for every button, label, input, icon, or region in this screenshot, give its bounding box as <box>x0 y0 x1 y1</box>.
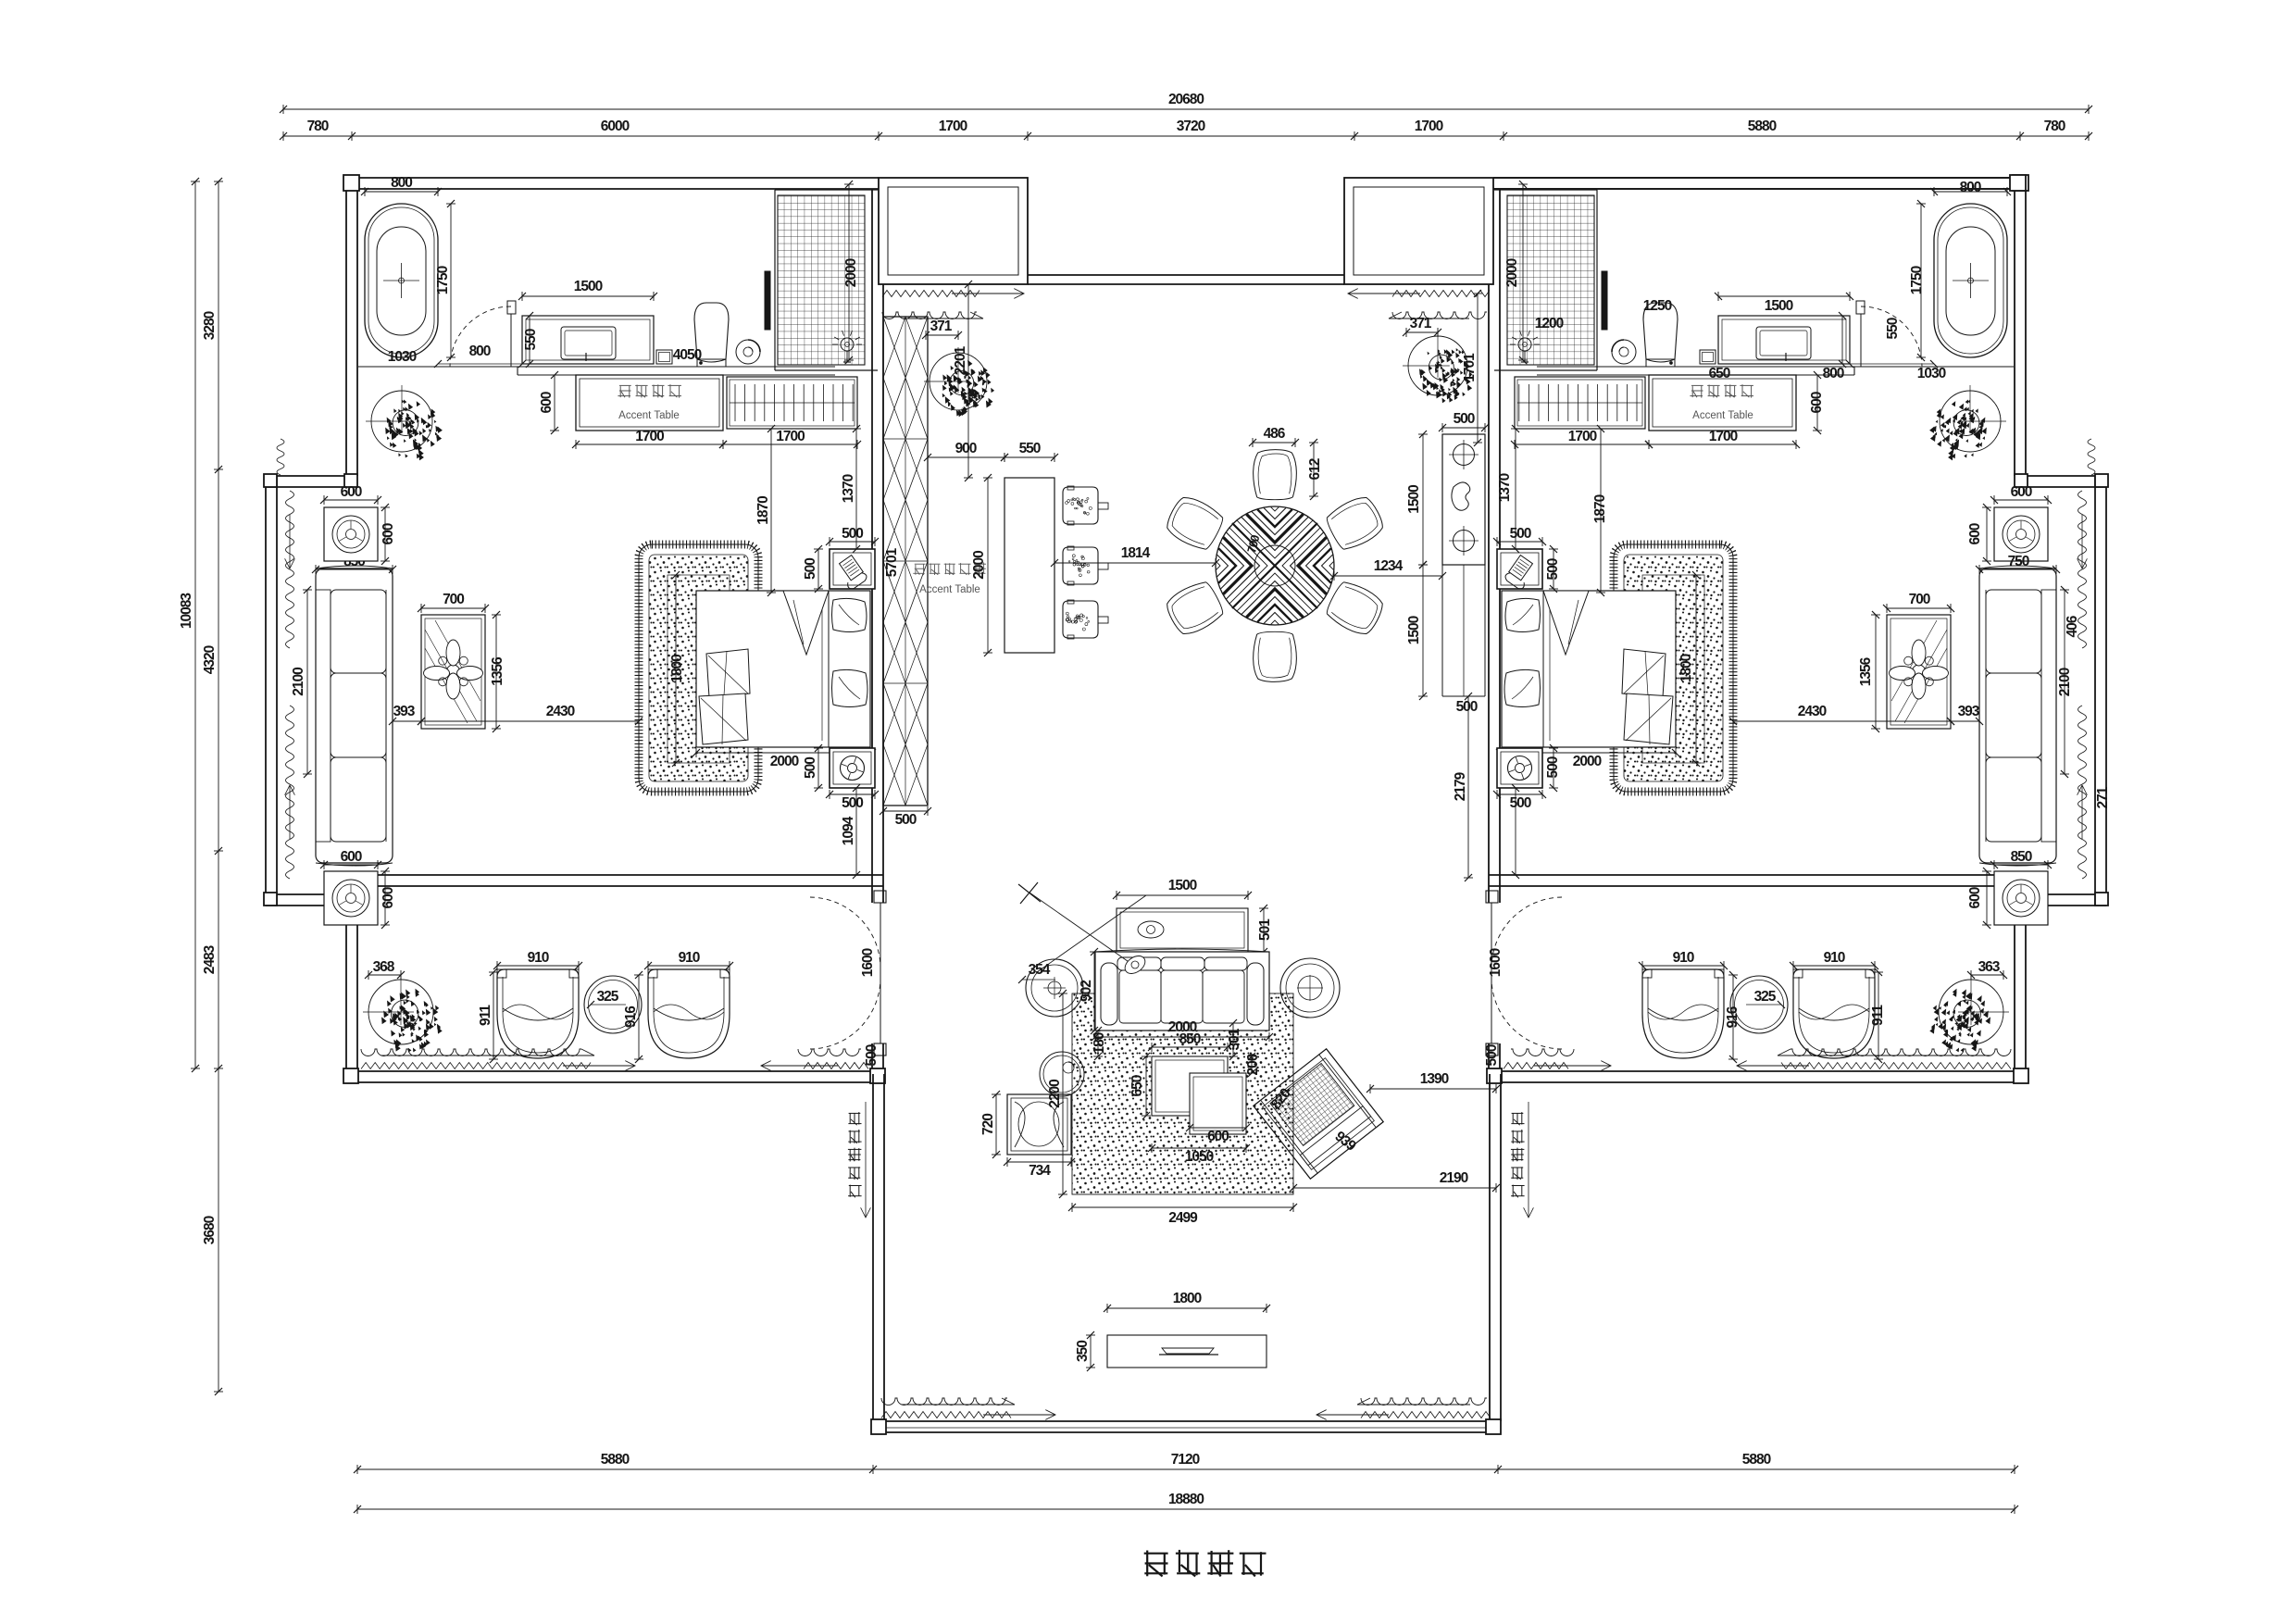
svg-text:368: 368 <box>373 959 395 975</box>
svg-text:600: 600 <box>1207 1129 1229 1144</box>
svg-text:1094: 1094 <box>841 816 856 845</box>
svg-text:7120: 7120 <box>1171 1452 1200 1468</box>
svg-text:600: 600 <box>341 484 362 500</box>
svg-text:5880: 5880 <box>601 1452 630 1468</box>
svg-text:1050: 1050 <box>1185 1149 1214 1165</box>
svg-text:800: 800 <box>1823 366 1844 381</box>
svg-text:2000: 2000 <box>1504 258 1520 287</box>
svg-text:350: 350 <box>1075 1341 1091 1362</box>
svg-text:1370: 1370 <box>1497 473 1513 502</box>
svg-text:1700: 1700 <box>1568 429 1597 444</box>
svg-text:2483: 2483 <box>202 944 218 974</box>
svg-text:1390: 1390 <box>1420 1071 1449 1087</box>
svg-text:1500: 1500 <box>1765 298 1793 314</box>
svg-text:4050: 4050 <box>673 347 702 363</box>
svg-text:10083: 10083 <box>179 593 194 629</box>
svg-text:550: 550 <box>523 329 539 350</box>
svg-text:1356: 1356 <box>490 656 505 686</box>
svg-text:500: 500 <box>1510 526 1531 542</box>
svg-text:486: 486 <box>1264 426 1286 442</box>
svg-text:700: 700 <box>443 592 464 607</box>
svg-text:910: 910 <box>679 950 700 966</box>
svg-text:700: 700 <box>1909 592 1930 607</box>
svg-text:500: 500 <box>864 1044 880 1066</box>
svg-text:500: 500 <box>1456 699 1478 715</box>
svg-text:6000: 6000 <box>601 119 630 134</box>
svg-text:600: 600 <box>1809 392 1825 413</box>
svg-text:720: 720 <box>980 1114 996 1135</box>
svg-text:612: 612 <box>1307 458 1323 480</box>
svg-text:600: 600 <box>381 523 396 544</box>
svg-text:1600: 1600 <box>1488 948 1504 977</box>
svg-text:550: 550 <box>1019 441 1041 456</box>
svg-text:780: 780 <box>2044 119 2065 134</box>
svg-text:Accent Table: Accent Table <box>919 584 980 595</box>
svg-text:1700: 1700 <box>776 429 805 444</box>
svg-text:910: 910 <box>1673 950 1694 966</box>
svg-text:325: 325 <box>1754 989 1777 1005</box>
svg-text:501: 501 <box>1257 918 1273 941</box>
svg-text:354: 354 <box>1029 962 1051 978</box>
svg-text:325: 325 <box>597 989 619 1005</box>
svg-text:910: 910 <box>1824 950 1845 966</box>
svg-text:2201: 2201 <box>953 345 968 375</box>
svg-text:1500: 1500 <box>1168 878 1197 893</box>
svg-text:301: 301 <box>1227 1028 1242 1050</box>
svg-text:5880: 5880 <box>1748 119 1777 134</box>
svg-text:Accent Table: Accent Table <box>618 410 680 421</box>
svg-text:371: 371 <box>1410 316 1432 331</box>
svg-text:850: 850 <box>2011 849 2032 865</box>
svg-text:600: 600 <box>341 849 362 865</box>
svg-text:180: 180 <box>1092 1032 1107 1054</box>
svg-text:902: 902 <box>1079 981 1094 1002</box>
svg-text:1701: 1701 <box>1462 353 1478 382</box>
svg-text:1356: 1356 <box>1858 656 1874 686</box>
svg-text:911: 911 <box>1870 1005 1886 1026</box>
svg-text:600: 600 <box>1967 523 1983 544</box>
svg-text:650: 650 <box>1129 1075 1145 1096</box>
svg-text:2430: 2430 <box>546 704 575 719</box>
svg-text:500: 500 <box>842 526 863 542</box>
svg-text:600: 600 <box>539 392 555 413</box>
svg-text:1030: 1030 <box>1917 366 1946 381</box>
svg-text:800: 800 <box>469 344 491 359</box>
svg-text:600: 600 <box>381 887 396 908</box>
svg-text:3720: 3720 <box>1177 119 1205 134</box>
svg-text:500: 500 <box>895 812 917 828</box>
svg-text:600: 600 <box>1967 887 1983 908</box>
svg-text:1750: 1750 <box>1909 266 1925 294</box>
svg-text:2000: 2000 <box>971 551 987 580</box>
svg-text:2430: 2430 <box>1798 704 1827 719</box>
svg-text:750: 750 <box>2008 554 2029 569</box>
svg-text:393: 393 <box>1958 704 1980 719</box>
svg-text:2100: 2100 <box>291 668 306 696</box>
svg-text:2000: 2000 <box>843 258 859 287</box>
svg-text:1870: 1870 <box>1592 494 1608 523</box>
svg-text:1234: 1234 <box>1374 558 1404 574</box>
svg-text:1030: 1030 <box>388 349 417 365</box>
svg-text:3280: 3280 <box>202 311 218 340</box>
svg-text:3680: 3680 <box>202 1216 218 1244</box>
svg-text:850: 850 <box>1179 1031 1201 1047</box>
svg-text:800: 800 <box>1960 180 1981 195</box>
svg-text:1600: 1600 <box>860 948 876 977</box>
svg-text:500: 500 <box>803 558 818 580</box>
svg-text:900: 900 <box>955 441 977 456</box>
svg-text:500: 500 <box>842 795 863 811</box>
svg-text:1800: 1800 <box>1678 654 1694 682</box>
svg-text:1750: 1750 <box>435 266 451 294</box>
svg-text:Accent Table: Accent Table <box>1692 410 1753 421</box>
svg-text:1370: 1370 <box>841 474 856 503</box>
svg-text:600: 600 <box>2011 484 2032 500</box>
svg-text:1500: 1500 <box>1406 485 1422 514</box>
svg-text:2179: 2179 <box>1453 771 1468 801</box>
svg-text:916: 916 <box>623 1006 639 1028</box>
svg-text:2000: 2000 <box>770 754 799 769</box>
svg-text:911: 911 <box>478 1005 493 1026</box>
svg-text:550: 550 <box>1885 318 1901 339</box>
svg-text:1700: 1700 <box>1709 429 1738 444</box>
svg-text:800: 800 <box>391 175 412 191</box>
svg-text:500: 500 <box>803 757 818 779</box>
svg-text:500: 500 <box>1545 756 1561 778</box>
svg-text:1700: 1700 <box>1415 119 1443 134</box>
svg-text:363: 363 <box>1978 959 2001 975</box>
svg-text:1200: 1200 <box>1535 316 1564 331</box>
svg-text:910: 910 <box>528 950 549 966</box>
svg-text:500: 500 <box>1510 795 1531 811</box>
svg-text:20680: 20680 <box>1168 92 1204 107</box>
svg-text:18880: 18880 <box>1168 1492 1204 1507</box>
svg-text:1700: 1700 <box>635 429 664 444</box>
svg-text:500: 500 <box>1454 411 1475 427</box>
svg-text:500: 500 <box>1545 558 1561 580</box>
svg-text:5880: 5880 <box>1742 1452 1771 1468</box>
svg-text:2000: 2000 <box>1573 754 1602 769</box>
svg-text:1800: 1800 <box>1173 1291 1202 1306</box>
svg-text:650: 650 <box>1709 366 1730 381</box>
svg-text:734: 734 <box>1029 1163 1051 1179</box>
svg-text:780: 780 <box>307 119 329 134</box>
svg-text:500: 500 <box>1484 1044 1500 1066</box>
svg-text:2190: 2190 <box>1440 1170 1468 1186</box>
svg-text:1500: 1500 <box>574 279 603 294</box>
svg-text:5701: 5701 <box>884 547 900 577</box>
svg-text:1250: 1250 <box>1643 298 1672 314</box>
svg-text:916: 916 <box>1725 1006 1741 1028</box>
svg-text:2100: 2100 <box>2057 668 2073 696</box>
svg-text:1814: 1814 <box>1121 545 1151 561</box>
svg-text:1500: 1500 <box>1406 616 1422 644</box>
svg-text:406: 406 <box>2065 615 2080 637</box>
svg-text:4320: 4320 <box>202 645 218 674</box>
svg-text:393: 393 <box>393 704 416 719</box>
svg-text:1700: 1700 <box>939 119 967 134</box>
svg-text:371: 371 <box>930 319 953 334</box>
svg-text:1800: 1800 <box>669 655 685 683</box>
svg-text:1870: 1870 <box>755 496 771 525</box>
svg-text:200: 200 <box>1245 1054 1261 1075</box>
svg-text:2499: 2499 <box>1168 1210 1198 1226</box>
svg-text:271: 271 <box>2095 786 2111 808</box>
